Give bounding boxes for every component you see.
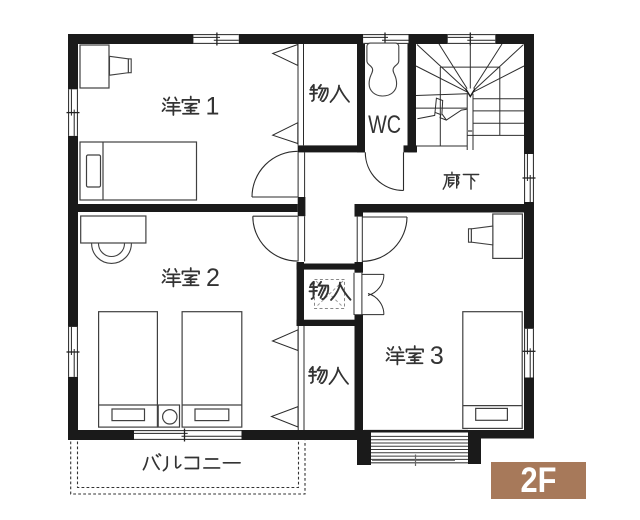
svg-text:2: 2 [206, 264, 220, 292]
svg-text:WC: WC [368, 111, 401, 139]
svg-text:2F: 2F [521, 461, 557, 500]
svg-text:3: 3 [430, 342, 444, 370]
svg-text:1: 1 [206, 92, 220, 120]
